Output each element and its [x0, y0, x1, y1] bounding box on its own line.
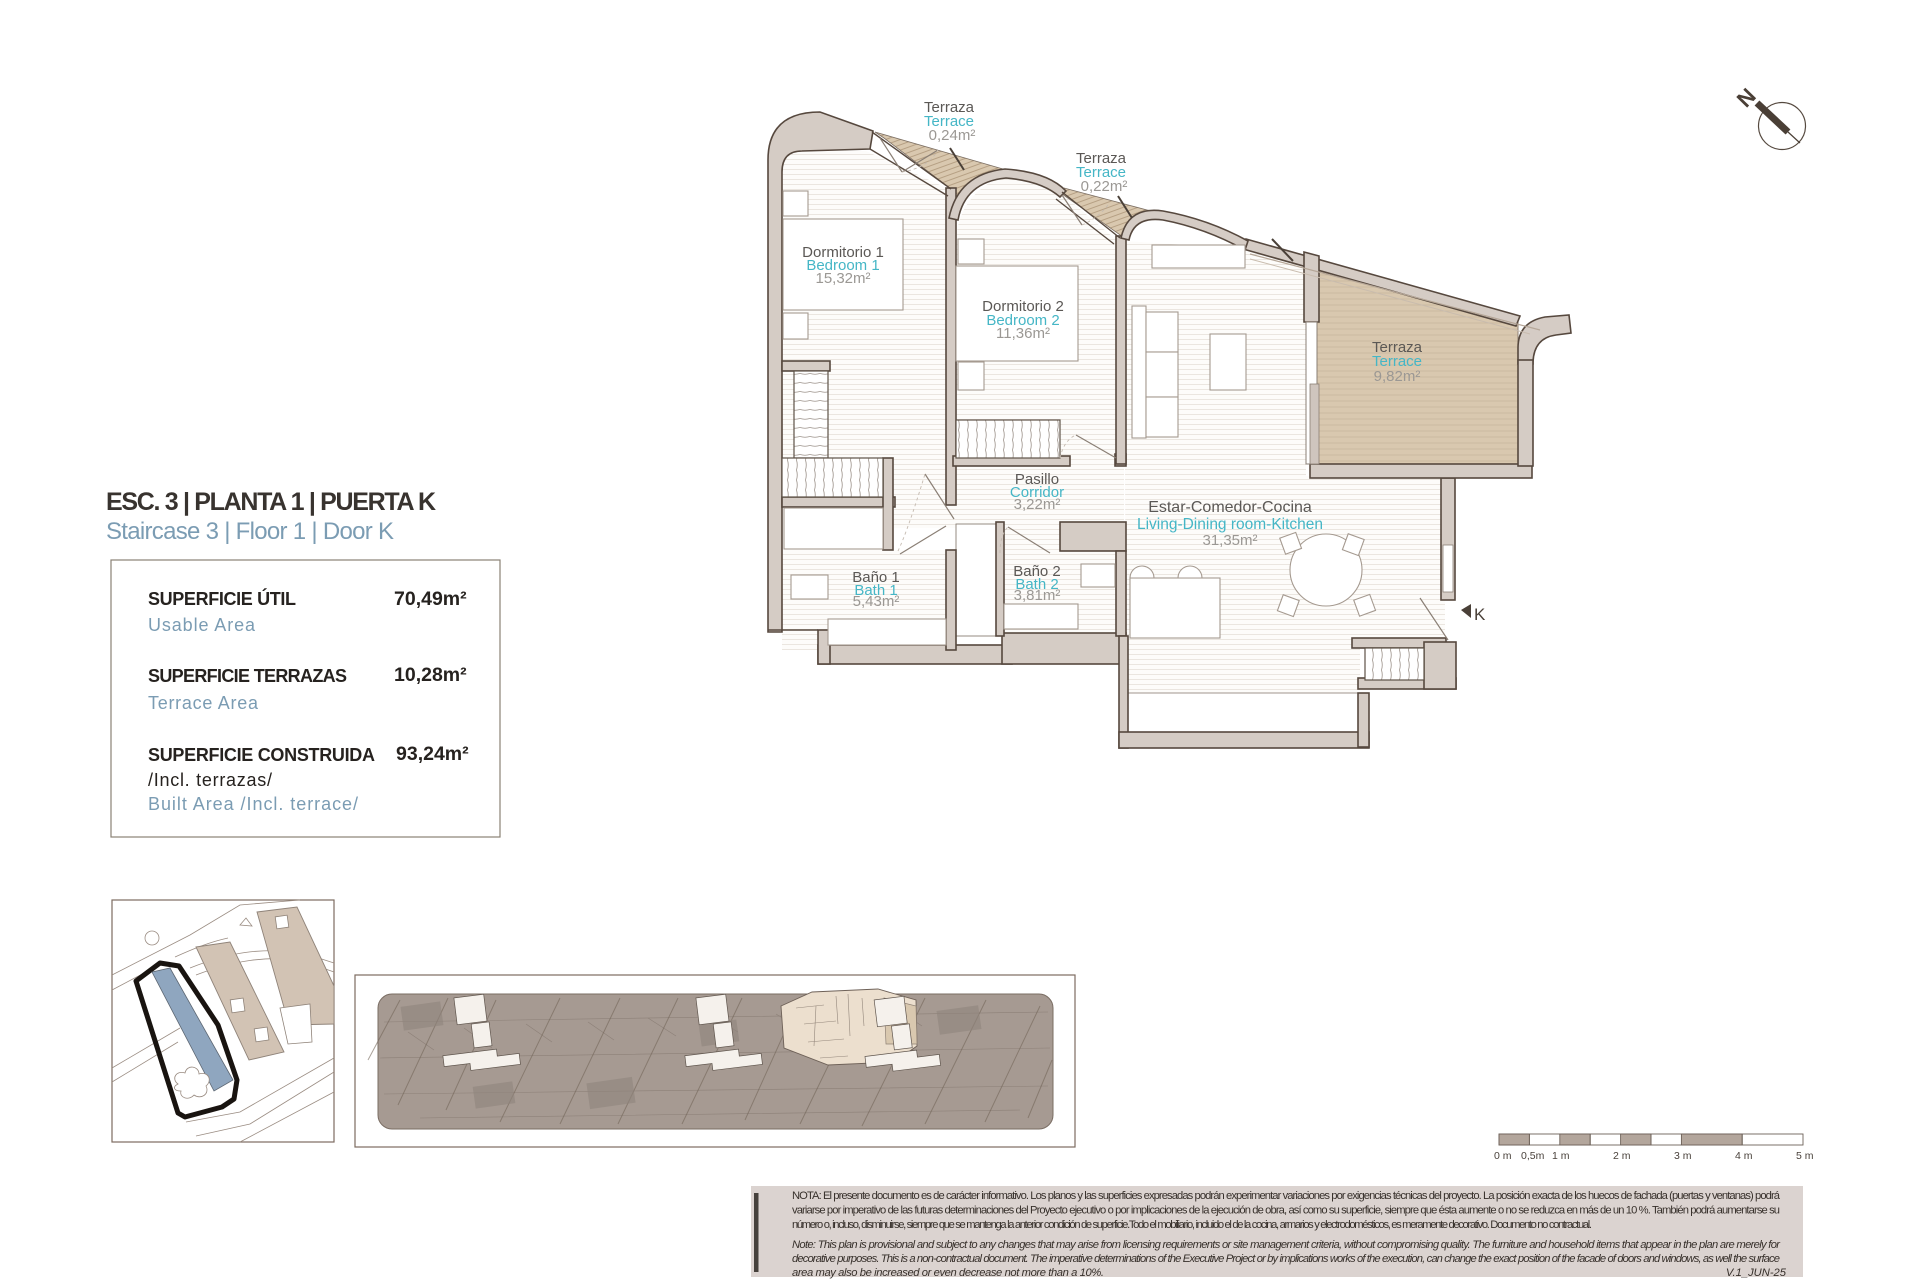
svg-text:10,28m²: 10,28m² — [394, 664, 467, 686]
svg-text:5 m: 5 m — [1796, 1150, 1814, 1162]
svg-text:5,43m²: 5,43m² — [853, 593, 900, 610]
svg-text:NOTA: El presente documento e: NOTA: El presente documento es de caráct… — [792, 1190, 1781, 1202]
svg-text:ESC. 3 | PLANTA 1 | PUERTA K: ESC. 3 | PLANTA 1 | PUERTA K — [106, 488, 436, 516]
svg-text:3 m: 3 m — [1674, 1150, 1692, 1162]
svg-text:número o, incluso, disminuirse: número o, incluso, disminuirse, siempre … — [792, 1219, 1592, 1231]
svg-text:15,32m²: 15,32m² — [815, 270, 870, 287]
svg-text:/Incl. terrazas/: /Incl. terrazas/ — [148, 770, 272, 790]
svg-text:SUPERFICIE TERRAZAS: SUPERFICIE TERRAZAS — [148, 666, 347, 686]
svg-text:K: K — [1474, 605, 1486, 624]
svg-text:V.1_JUN-25: V.1_JUN-25 — [1726, 1267, 1787, 1279]
svg-text:2 m: 2 m — [1613, 1150, 1631, 1162]
svg-text:4 m: 4 m — [1735, 1150, 1753, 1162]
svg-text:Usable Area: Usable Area — [148, 615, 256, 635]
svg-text:1 m: 1 m — [1552, 1150, 1570, 1162]
svg-text:93,24m²: 93,24m² — [396, 743, 469, 765]
svg-text:Note: This plan is provisional: Note: This plan is provisional and subje… — [792, 1239, 1781, 1251]
svg-text:variarse por imperativo de las: variarse por imperativo de las futuras d… — [792, 1205, 1780, 1217]
svg-text:Built Area /Incl. terrace/: Built Area /Incl. terrace/ — [148, 794, 358, 814]
svg-text:0,5m: 0,5m — [1521, 1150, 1545, 1162]
svg-text:31,35m²: 31,35m² — [1202, 532, 1257, 549]
svg-text:decorative purposes. This is a: decorative purposes. This is a non-contr… — [792, 1253, 1780, 1265]
svg-text:Living-Dining room-Kitchen: Living-Dining room-Kitchen — [1137, 516, 1323, 533]
svg-text:SUPERFICIE ÚTIL: SUPERFICIE ÚTIL — [148, 588, 296, 609]
svg-text:70,49m²: 70,49m² — [394, 588, 467, 610]
svg-text:Estar-Comedor-Cocina: Estar-Comedor-Cocina — [1148, 499, 1312, 516]
svg-text:SUPERFICIE CONSTRUIDA: SUPERFICIE CONSTRUIDA — [148, 745, 375, 765]
svg-text:11,36m²: 11,36m² — [996, 325, 1050, 342]
svg-text:3,81m²: 3,81m² — [1014, 587, 1061, 604]
svg-text:Staircase 3 | Floor 1 | Door K: Staircase 3 | Floor 1 | Door K — [106, 518, 394, 545]
svg-text:area may also be increased or: area may also be increased or even decre… — [792, 1267, 1104, 1279]
svg-text:0 m: 0 m — [1494, 1150, 1512, 1162]
svg-text:9,82m²: 9,82m² — [1374, 368, 1421, 385]
svg-text:3,22m²: 3,22m² — [1014, 496, 1061, 513]
svg-text:N: N — [1732, 83, 1761, 112]
svg-text:Terrace Area: Terrace Area — [148, 693, 259, 713]
svg-text:0,22m²: 0,22m² — [1081, 178, 1128, 195]
svg-text:0,24m²: 0,24m² — [929, 127, 976, 144]
